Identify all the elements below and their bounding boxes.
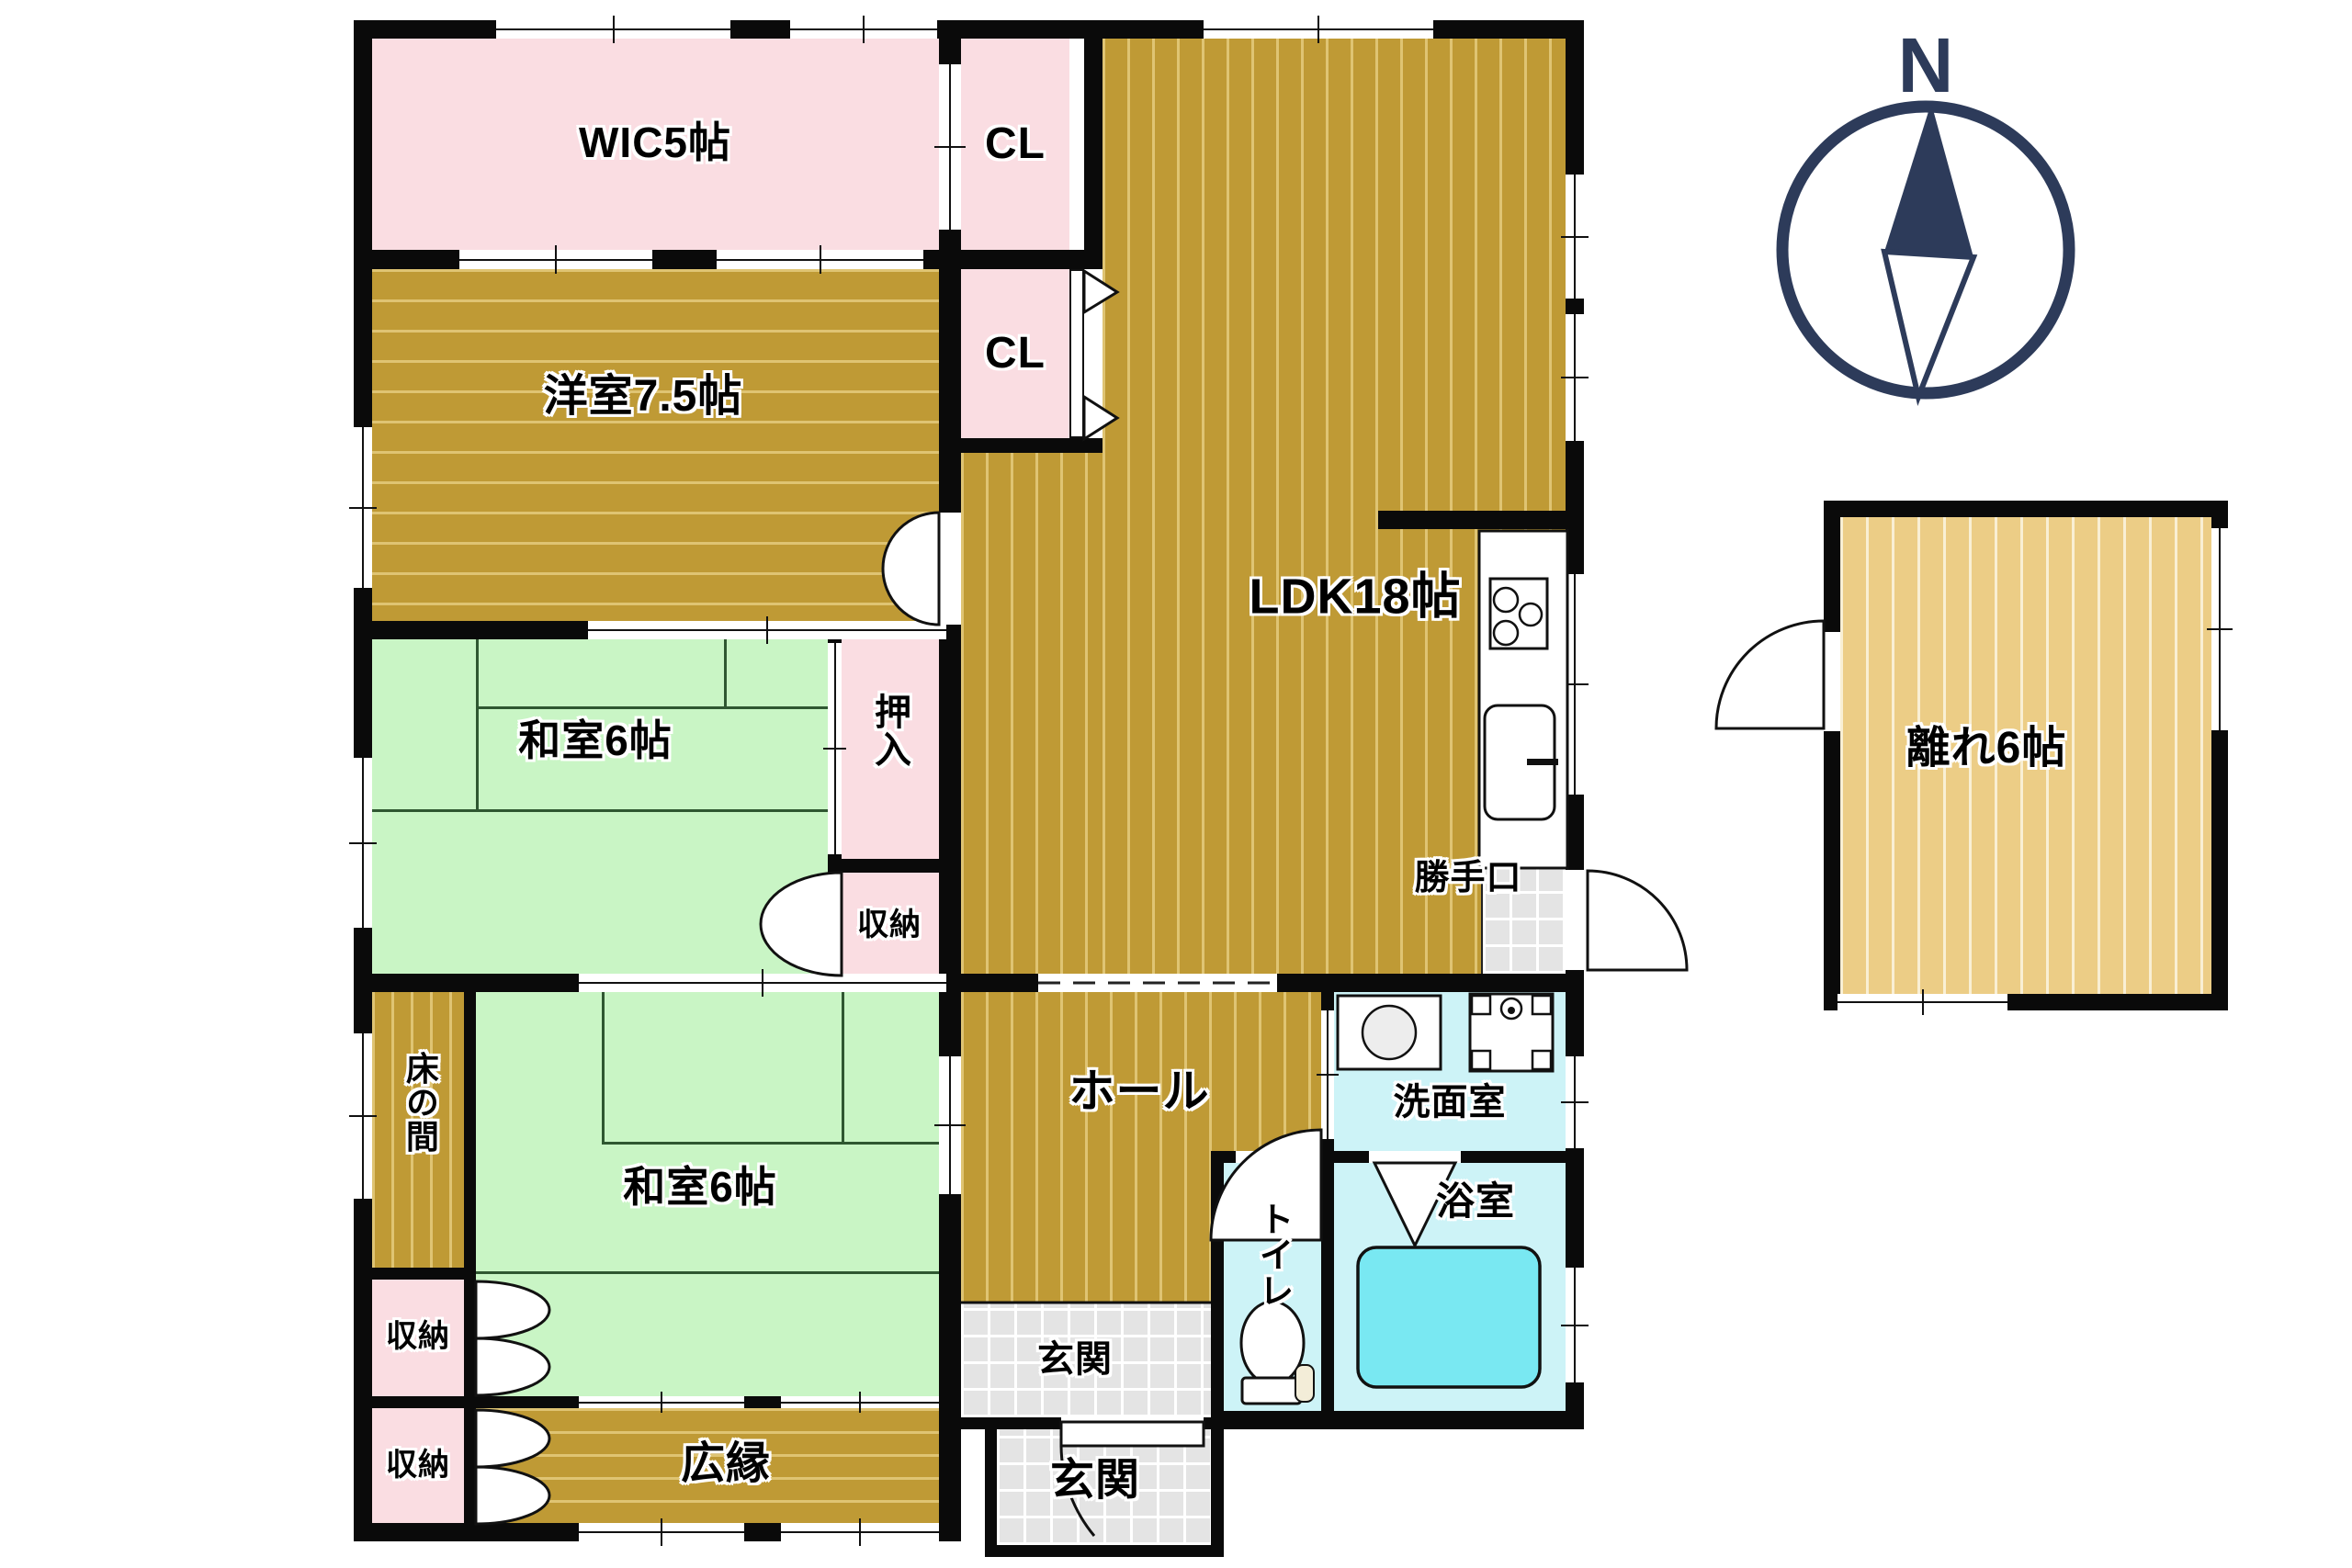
door-arc-hanare bbox=[1716, 621, 1824, 728]
label-washitsu-lower: 和室6帖 bbox=[623, 1165, 777, 1209]
wall-segment bbox=[1211, 1151, 1224, 1411]
wall-segment bbox=[985, 1429, 997, 1545]
window bbox=[1566, 1056, 1584, 1148]
sliding-door bbox=[828, 643, 842, 854]
room-ldk-extension bbox=[961, 453, 1102, 974]
tatami-seam bbox=[602, 992, 605, 1145]
open-boundary bbox=[1038, 974, 1277, 992]
sliding-door bbox=[939, 1056, 961, 1194]
wall-segment bbox=[961, 1417, 1061, 1429]
room-senmenshitsu bbox=[1334, 992, 1566, 1151]
sliding-door bbox=[939, 64, 961, 230]
label-hanare: 離れ6帖 bbox=[1906, 726, 2067, 772]
label-senmenshitsu: 洗面室 bbox=[1394, 1083, 1507, 1122]
room-washitsu-upper bbox=[372, 639, 842, 974]
window bbox=[1837, 994, 2007, 1010]
wall-segment bbox=[1204, 1417, 1224, 1429]
label-ldk: LDK18帖 bbox=[1249, 571, 1461, 624]
room-ldk bbox=[1102, 39, 1566, 974]
door-opening bbox=[1369, 1151, 1461, 1163]
wall-segment bbox=[1824, 501, 2228, 517]
cl-mid-door-track bbox=[1069, 269, 1084, 438]
window bbox=[579, 1523, 744, 1541]
katteguchi-opening bbox=[1566, 870, 1584, 970]
label-yokushitsu: 浴室 bbox=[1436, 1181, 1515, 1222]
wall-segment bbox=[1378, 511, 1566, 529]
compass-needle-south bbox=[1884, 252, 1973, 397]
tatami-seam bbox=[724, 639, 727, 709]
compass-needle-north bbox=[1884, 103, 1973, 257]
sliding-door bbox=[459, 250, 652, 269]
window bbox=[1566, 574, 1584, 795]
sliding-door bbox=[588, 621, 946, 639]
tatami-seam bbox=[476, 639, 479, 812]
label-genkan-inner: 玄関 bbox=[1037, 1340, 1113, 1379]
tatami-seam bbox=[476, 1271, 939, 1274]
compass: N bbox=[1782, 22, 2069, 397]
door-opening bbox=[1236, 1151, 1314, 1163]
room-youshitsu bbox=[372, 269, 939, 621]
label-wic: WIC5帖 bbox=[579, 120, 731, 164]
window bbox=[354, 1033, 372, 1199]
wall-segment bbox=[1211, 1411, 1584, 1429]
sliding-door bbox=[579, 974, 946, 992]
label-shunou-left-upper: 収納 bbox=[386, 1321, 450, 1354]
door-opening bbox=[939, 513, 961, 625]
window bbox=[496, 20, 730, 39]
window bbox=[781, 1523, 939, 1541]
wall-segment bbox=[464, 1280, 476, 1523]
window bbox=[790, 20, 937, 39]
label-washitsu-upper: 和室6帖 bbox=[518, 718, 673, 762]
compass-ring bbox=[1782, 107, 2069, 393]
label-tokonoma: 床の間 bbox=[402, 1052, 437, 1154]
label-shunou-upper: 収納 bbox=[857, 909, 922, 942]
wall-segment bbox=[1084, 39, 1102, 269]
wall-segment bbox=[828, 859, 939, 873]
sliding-door bbox=[717, 250, 923, 269]
window bbox=[1204, 20, 1433, 39]
window bbox=[2211, 528, 2228, 730]
door-arc-katteguchi bbox=[1588, 871, 1687, 970]
tatami-seam bbox=[476, 706, 828, 709]
label-hall: ホール bbox=[1069, 1067, 1210, 1116]
wall-segment bbox=[961, 438, 1102, 453]
floor-plan: N WIC5帖 CL CL 洋室7.5帖 LDK18帖 押入 和室6帖 収納 床… bbox=[0, 0, 2352, 1568]
label-hiroen: 広縁 bbox=[681, 1441, 771, 1487]
label-katteguchi: 勝手口 bbox=[1414, 861, 1521, 897]
label-genkan-outer: 玄関 bbox=[1050, 1458, 1140, 1504]
label-shunou-left-lower: 収納 bbox=[386, 1450, 450, 1483]
hanare-door-opening bbox=[1824, 632, 1840, 731]
tatami-seam bbox=[602, 1142, 939, 1145]
sliding-door bbox=[579, 1396, 744, 1408]
label-youshitsu: 洋室7.5帖 bbox=[544, 374, 743, 420]
tatami-seam bbox=[842, 992, 844, 1145]
label-oshiire: 押入 bbox=[870, 693, 909, 768]
wall-segment bbox=[464, 992, 476, 1268]
label-cl-mid: CL bbox=[985, 331, 1046, 377]
window bbox=[354, 758, 372, 928]
sliding-door bbox=[1321, 1010, 1334, 1139]
wall-segment bbox=[985, 1545, 1224, 1557]
window bbox=[354, 427, 372, 588]
wall-segment bbox=[354, 1268, 476, 1280]
window bbox=[1566, 1268, 1584, 1382]
sliding-door bbox=[781, 1396, 939, 1408]
window bbox=[1566, 314, 1584, 441]
compass-north-label: N bbox=[1898, 22, 1954, 108]
label-cl-top: CL bbox=[985, 121, 1046, 167]
wall-segment bbox=[1824, 501, 1840, 1010]
label-toire: トイレ bbox=[1253, 1201, 1290, 1309]
wall-segment bbox=[1211, 1429, 1224, 1557]
wall-segment bbox=[354, 1396, 476, 1408]
tatami-seam bbox=[372, 809, 828, 812]
window bbox=[1566, 175, 1584, 299]
